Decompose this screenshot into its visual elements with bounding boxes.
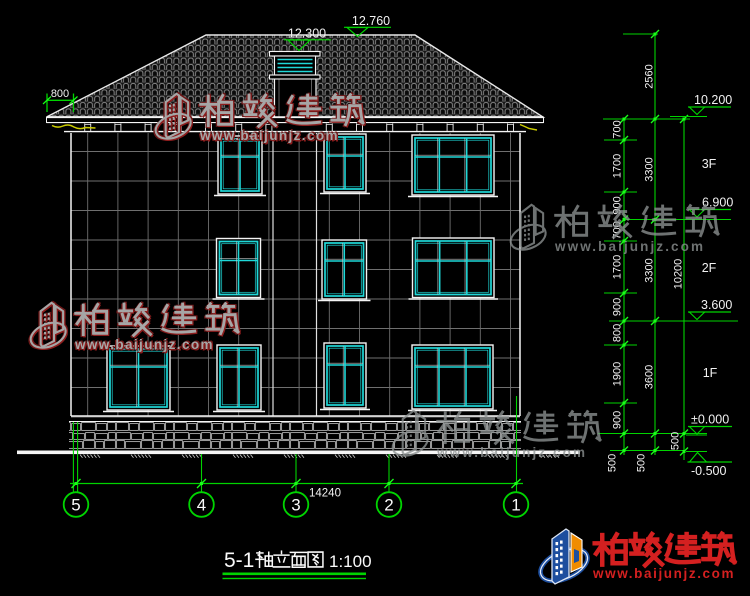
svg-text:±0.000: ±0.000 — [691, 413, 729, 427]
svg-text:5-1: 5-1 — [224, 549, 254, 572]
svg-text:10200: 10200 — [673, 259, 685, 290]
svg-text:12.760: 12.760 — [352, 14, 390, 28]
svg-text:www.baijunjz.com: www.baijunjz.com — [74, 337, 214, 352]
svg-text:5: 5 — [71, 496, 80, 515]
svg-text:1700: 1700 — [612, 154, 624, 178]
svg-text:3.600: 3.600 — [701, 298, 732, 312]
svg-text:1900: 1900 — [612, 362, 624, 386]
svg-text:www.baijunjz.com: www.baijunjz.com — [199, 128, 339, 143]
svg-text:1:100: 1:100 — [329, 552, 372, 571]
svg-text:www.baijunjz.com: www.baijunjz.com — [436, 445, 587, 460]
svg-text:700: 700 — [612, 120, 624, 138]
svg-text:www.baijunjz.com: www.baijunjz.com — [554, 239, 705, 254]
svg-text:2F: 2F — [702, 261, 717, 275]
svg-text:3300: 3300 — [644, 258, 656, 282]
svg-text:-0.500: -0.500 — [691, 464, 726, 478]
svg-text:1: 1 — [511, 496, 520, 515]
svg-text:1F: 1F — [703, 366, 718, 380]
svg-text:500: 500 — [636, 454, 648, 472]
svg-text:3300: 3300 — [644, 157, 656, 181]
svg-text:1700: 1700 — [612, 255, 624, 279]
svg-text:800: 800 — [51, 88, 69, 100]
svg-text:14240: 14240 — [309, 488, 341, 500]
svg-text:800: 800 — [612, 324, 624, 342]
svg-text:2: 2 — [384, 496, 393, 515]
svg-text:500: 500 — [607, 454, 619, 472]
svg-text:4: 4 — [197, 496, 206, 515]
svg-text:www.baijunjz.com: www.baijunjz.com — [592, 566, 735, 581]
svg-text:12.300: 12.300 — [288, 27, 326, 41]
svg-text:3: 3 — [291, 496, 300, 515]
svg-text:3600: 3600 — [644, 365, 656, 389]
svg-text:500: 500 — [670, 432, 682, 450]
svg-text:10.200: 10.200 — [694, 93, 732, 107]
svg-text:900: 900 — [612, 411, 624, 429]
svg-text:2560: 2560 — [644, 64, 656, 88]
svg-text:900: 900 — [612, 298, 624, 316]
svg-text:3F: 3F — [702, 157, 717, 171]
